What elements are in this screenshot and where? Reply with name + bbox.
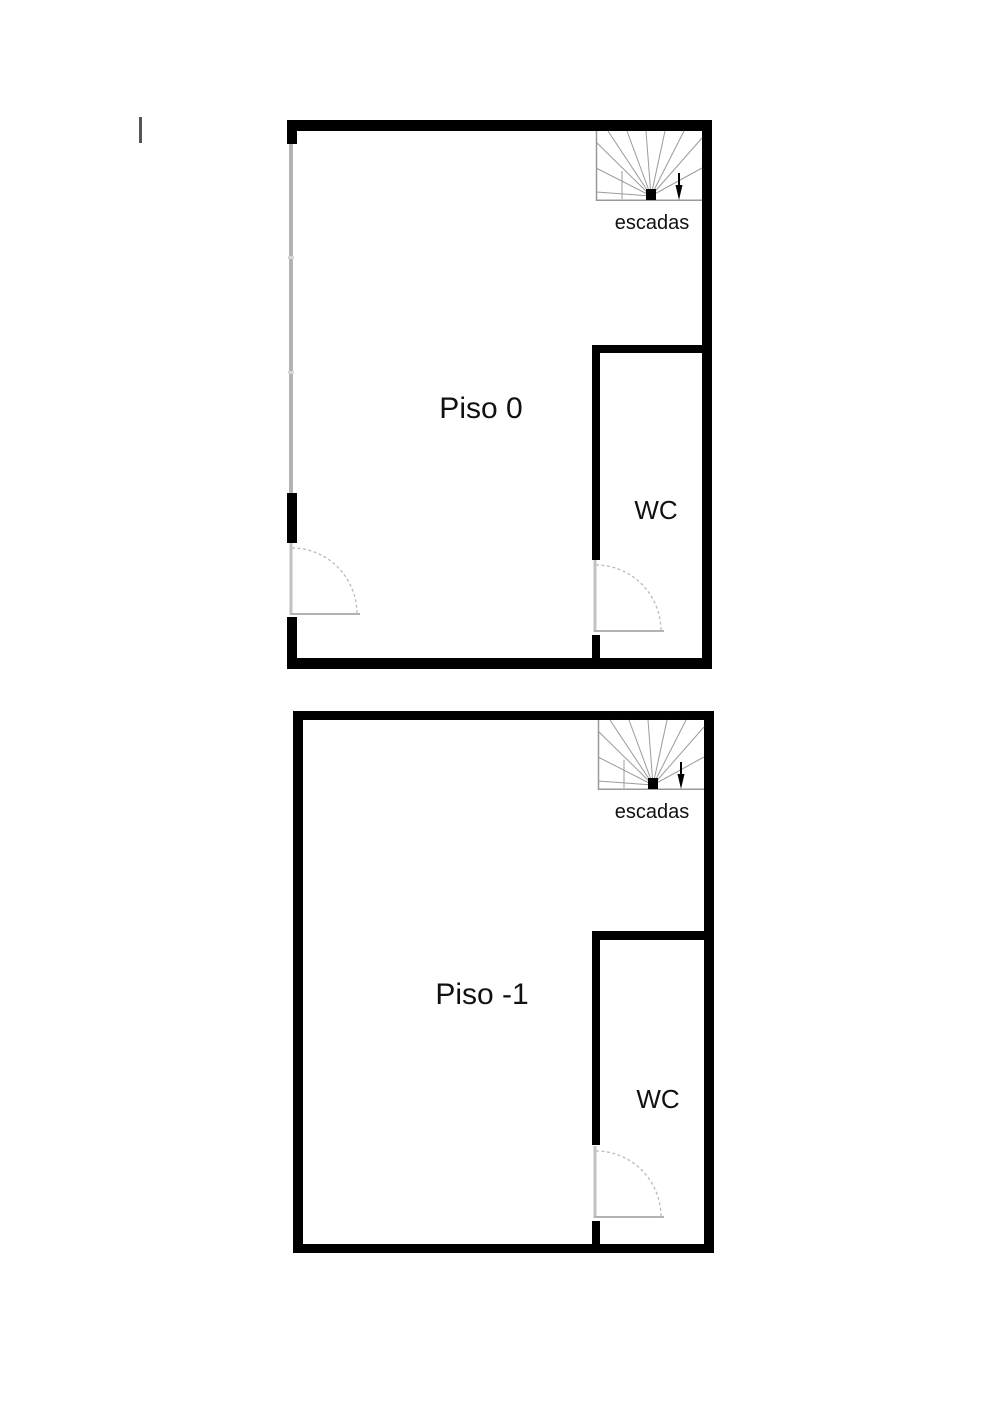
floor-label-piso-0: Piso 0	[439, 394, 522, 424]
wc-wall-top	[592, 345, 702, 353]
wall-right	[702, 120, 712, 669]
wall-left-bottom	[287, 617, 297, 669]
wc-door-swing	[594, 560, 665, 632]
wc-wall-stub	[592, 635, 600, 658]
wc-wall-top	[592, 931, 704, 940]
wall-top	[293, 711, 714, 720]
window-line	[289, 144, 293, 493]
room-label-wc-piso-0: WC	[634, 497, 677, 523]
wall-bottom	[287, 658, 712, 669]
stairs-icon	[598, 720, 704, 790]
wall-bottom	[293, 1244, 714, 1253]
window-joint	[288, 371, 294, 374]
wc-wall-left	[592, 345, 600, 560]
wall-left	[293, 711, 303, 1253]
stairs-label-piso-0: escadas	[615, 213, 690, 233]
stairs-icon	[596, 131, 702, 201]
wall-left-mid	[287, 493, 297, 543]
room-label-wc-piso-minus-1: WC	[636, 1086, 679, 1112]
floorplan-page: Piso 0 WC escadas Piso -1 WC escadas	[0, 0, 1000, 1418]
wc-wall-stub	[592, 1221, 600, 1244]
wall-top	[287, 120, 712, 131]
entry-door-swing	[290, 543, 361, 615]
floorplan-drawing	[0, 0, 1000, 1418]
wall-right	[704, 711, 714, 1253]
wall-left-corner	[287, 120, 297, 144]
wc-wall-left	[592, 931, 600, 1145]
window-joint	[288, 256, 294, 259]
stairs-label-piso-minus-1: escadas	[615, 802, 690, 822]
wc-door-swing	[594, 1146, 665, 1218]
floor-label-piso-minus-1: Piso -1	[435, 980, 528, 1010]
